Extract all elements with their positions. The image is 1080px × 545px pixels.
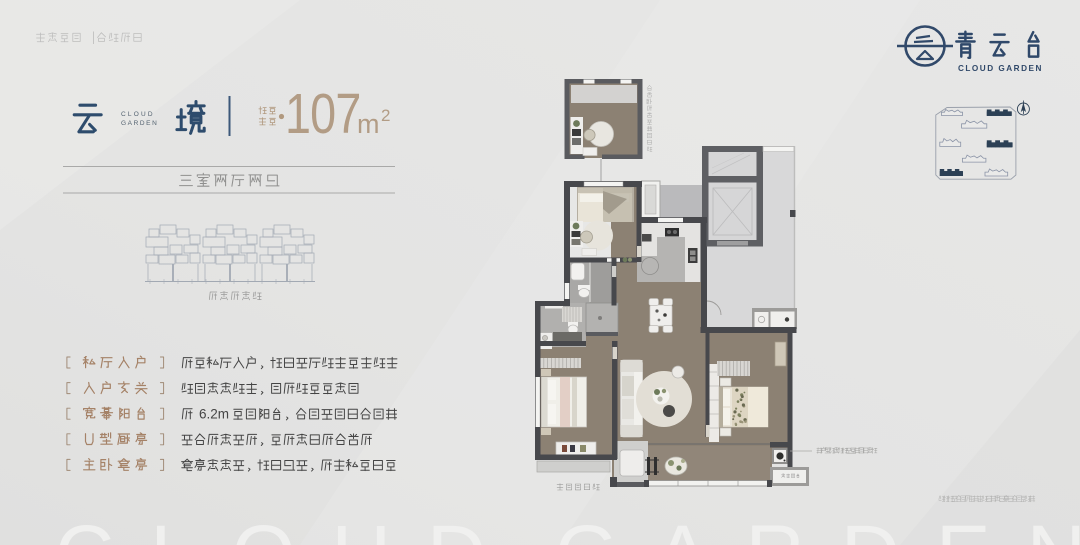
svg-text:107: 107	[285, 83, 361, 146]
svg-text:m: m	[357, 109, 380, 139]
svg-text:GARDEN: GARDEN	[555, 509, 1080, 545]
svg-text:2: 2	[381, 106, 390, 125]
svg-text:CLOUD GARDEN: CLOUD GARDEN	[958, 64, 1043, 73]
svg-text:6.2m: 6.2m	[199, 406, 229, 421]
svg-text:GARDEN: GARDEN	[121, 120, 158, 127]
svg-text:CLOUD: CLOUD	[121, 111, 155, 118]
svg-text:CLOUD: CLOUD	[55, 509, 522, 545]
